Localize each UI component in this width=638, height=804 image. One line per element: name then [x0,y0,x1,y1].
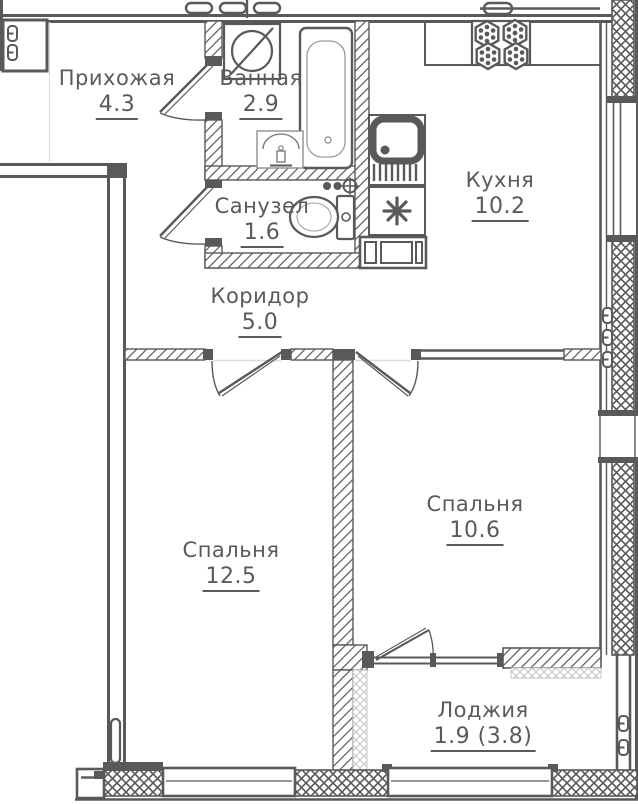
balcony-door [362,628,434,668]
room-area: 1.9 (3.8) [431,725,536,752]
wall-left-lower [0,163,127,770]
bedroom-main-window [163,768,295,796]
right-wall-window-gap [598,410,638,463]
bathtub-icon [300,28,352,168]
cabinet-icon [360,237,426,268]
room-label-bedroom-second: Спальня 10.6 [427,492,524,546]
ventilation-shaft-icon [369,187,425,235]
bedroom-second-door [356,352,418,396]
room-area: 2.9 [240,93,283,120]
room-label-hallway: Прихожая 4.3 [59,66,175,120]
wc-door [160,184,213,244]
bottom-left-pier [77,769,104,798]
wall-wc-south [205,253,362,268]
room-area: 1.6 [241,221,284,248]
room-label-corridor: Коридор 5.0 [211,284,310,338]
kitchen-window [606,96,638,242]
wall-top-exterior [0,16,636,22]
room-name: Спальня [427,492,524,516]
room-name: Прихожая [59,66,175,90]
room-area: 5.0 [239,311,282,338]
kitchen-sink-icon [369,115,425,185]
right-wall-latches [603,308,612,367]
wall-bathroom-east [355,21,369,255]
loggia-window [430,653,503,667]
room-label-bedroom-main: Спальня 12.5 [183,538,280,592]
bedroom-main-door [212,352,282,396]
room-name: Кухня [466,168,535,192]
room-name: Спальня [183,538,280,562]
stove-icon [472,20,530,69]
room-label-kitchen: Кухня 10.2 [466,168,535,222]
wall-left-window [2,0,48,71]
room-area: 4.3 [96,93,139,120]
wall-loggia-east [617,655,630,772]
room-name: Санузел [215,194,310,218]
room-name: Ванная [219,66,302,90]
room-label-wc: Санузел 1.6 [215,194,310,248]
room-area: 12.5 [203,565,260,592]
floor-plan-drawing [0,0,638,804]
wall-loggia-north [503,648,601,678]
room-name: Лоджия [437,698,528,722]
room-label-loggia: Лоджия 1.9 (3.8) [431,698,536,752]
loggia-bottom-window [388,768,552,796]
floor-plan: Прихожая 4.3 Ванная 2.9 Санузел 1.6 Кухн… [0,0,638,804]
wash-basin-icon [257,131,303,168]
room-name: Коридор [211,284,310,308]
wall-between-bedrooms [333,360,367,772]
room-area: 10.2 [472,195,529,222]
room-area: 10.6 [447,519,504,546]
room-label-bathroom: Ванная 2.9 [219,66,302,120]
